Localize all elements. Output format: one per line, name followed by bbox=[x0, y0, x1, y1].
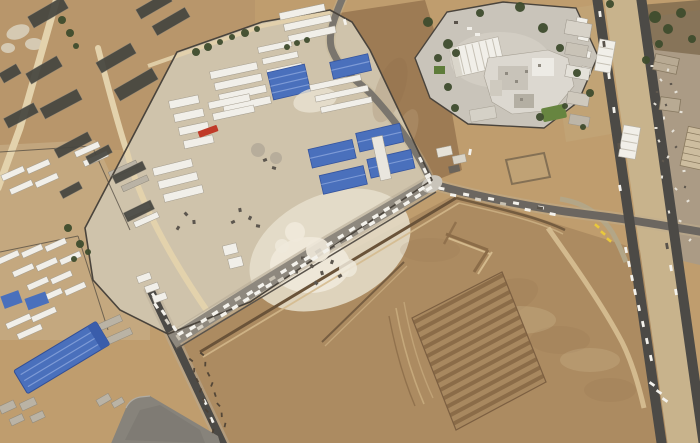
tree bbox=[423, 17, 433, 27]
tree bbox=[655, 40, 663, 48]
tree bbox=[254, 26, 260, 32]
equipment bbox=[192, 220, 195, 224]
tree bbox=[294, 40, 300, 46]
tree bbox=[192, 48, 200, 56]
marking-dash bbox=[209, 419, 211, 424]
tree bbox=[586, 89, 594, 97]
tree bbox=[515, 2, 525, 12]
tree bbox=[573, 69, 581, 77]
marking-dash bbox=[221, 413, 223, 418]
tree bbox=[556, 44, 564, 52]
tree bbox=[688, 35, 696, 43]
tree bbox=[649, 11, 661, 23]
tree bbox=[71, 256, 77, 262]
satellite-scene bbox=[0, 0, 700, 443]
tree bbox=[76, 240, 84, 248]
tree bbox=[538, 23, 548, 33]
tree bbox=[229, 34, 235, 40]
debris bbox=[656, 91, 658, 93]
tree bbox=[562, 103, 568, 109]
tree bbox=[642, 56, 650, 64]
tree bbox=[444, 83, 452, 91]
debris bbox=[661, 175, 663, 178]
tree bbox=[580, 124, 586, 130]
tree bbox=[476, 9, 484, 17]
tree bbox=[66, 29, 74, 37]
debris bbox=[654, 127, 657, 129]
tree bbox=[73, 43, 79, 49]
tree bbox=[58, 16, 66, 24]
tree bbox=[217, 39, 223, 45]
tree bbox=[64, 224, 72, 232]
tree bbox=[452, 49, 460, 57]
debris bbox=[651, 65, 654, 67]
tree bbox=[85, 249, 91, 255]
tree bbox=[606, 0, 614, 8]
tree bbox=[676, 8, 686, 18]
tree bbox=[241, 29, 249, 37]
marking-dash bbox=[204, 362, 206, 367]
tree bbox=[434, 54, 442, 62]
debris bbox=[663, 116, 665, 119]
tree bbox=[663, 24, 673, 34]
tree bbox=[536, 113, 544, 121]
ruined-building bbox=[659, 97, 681, 113]
tree bbox=[284, 44, 290, 50]
debris bbox=[670, 83, 673, 85]
tree bbox=[451, 104, 459, 112]
tree bbox=[204, 43, 212, 51]
tree bbox=[304, 37, 310, 43]
marking-dash bbox=[193, 368, 195, 373]
tree bbox=[443, 39, 453, 49]
satellite-image bbox=[0, 0, 700, 443]
